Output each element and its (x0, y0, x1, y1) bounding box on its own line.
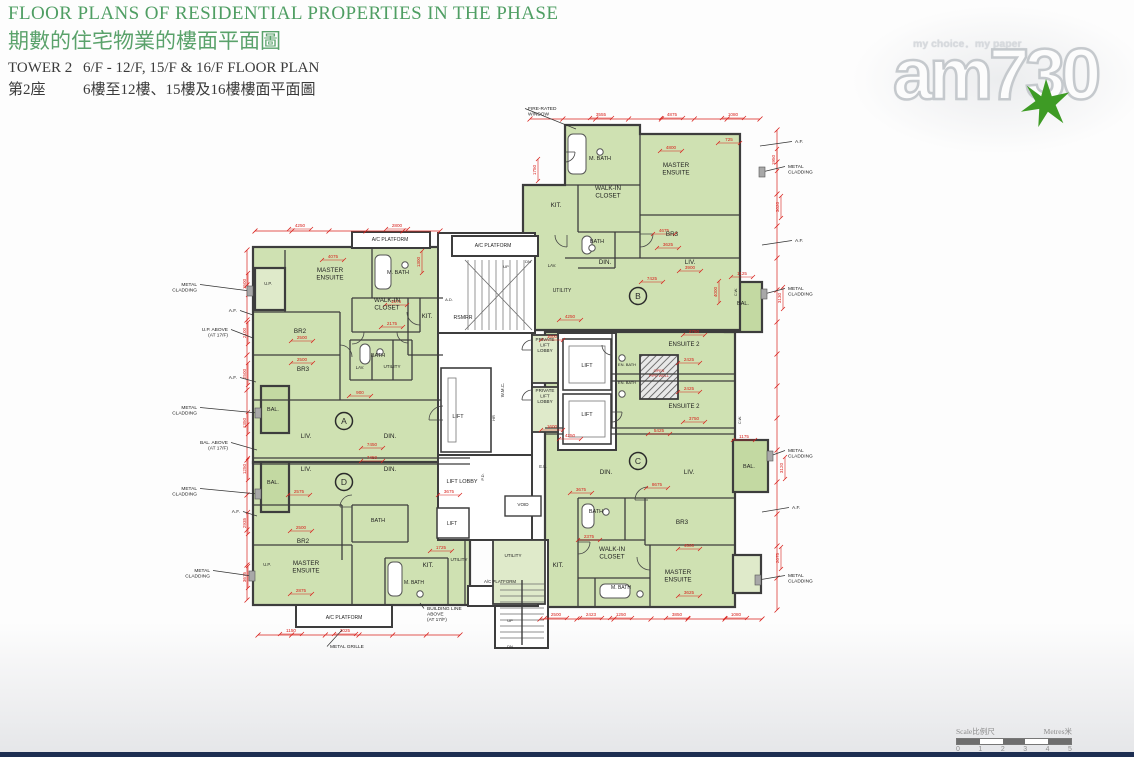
room-label: KIT. (551, 202, 562, 209)
room-label: M. BATH (589, 156, 611, 162)
dim-label: 1750 (532, 164, 537, 175)
dim-label: 1080 (731, 612, 742, 617)
room-label: W.M.C. (500, 383, 505, 397)
room-label: BR2 (297, 538, 310, 545)
dim-label: 2500 (242, 368, 247, 379)
room-label: ENSUITE 2 (668, 342, 700, 348)
lobby-area (493, 540, 545, 604)
floor-plan: 4250280035554875108017504800725467536253… (0, 0, 1134, 757)
dim-label: 1150 (286, 628, 296, 633)
room-label: MASTERENSUITE (292, 560, 319, 574)
dim-label: 2075 (775, 552, 780, 563)
dim-label: 3020 (775, 201, 780, 212)
annotation-leader (762, 167, 785, 173)
room-label: LAV. (548, 263, 556, 268)
annotation-label: BUILDING LINEABOVE(AT 17/F) (427, 606, 462, 623)
dim-label: 3675 (576, 487, 587, 492)
toilet (417, 591, 423, 597)
room-label: A/C PLATFORM (484, 579, 516, 584)
toilet (637, 591, 643, 597)
room-label: DIN. (599, 259, 612, 266)
room-label: BAL. (267, 407, 279, 413)
dim-label: 2375 (584, 534, 595, 539)
dim-label: 2750 (689, 329, 700, 334)
cladding-mark (249, 571, 255, 581)
room-label: A/C PLATFORM (326, 615, 363, 621)
dim-label: 2100 (242, 327, 247, 338)
cladding-mark (759, 167, 765, 177)
scale-segment (1003, 739, 1026, 744)
scale-bar-labels: Scale比例尺 Metres米 (956, 726, 1072, 737)
bathtub (582, 504, 594, 528)
annotation-label: A.F. (229, 308, 237, 314)
room-label: BATH (371, 518, 385, 524)
room-label: LIFT LOBBY (446, 479, 477, 485)
annotation-label: METALCLADDING (788, 164, 813, 176)
dim-label: 1500 (242, 278, 247, 289)
annotation-leader (760, 142, 792, 147)
dim-label: 4000 (713, 286, 718, 297)
unit-badge-letter: A (341, 416, 347, 426)
room-label: LIV. (301, 433, 312, 440)
scale-segment (957, 739, 980, 744)
dim-label: 900 (356, 390, 364, 395)
dim-label: 2425 (684, 357, 695, 362)
toilet (589, 245, 595, 251)
cladding-mark (767, 451, 773, 461)
scale-segment (980, 739, 1003, 744)
room-label: U.P. (264, 281, 272, 286)
room-label: M. BATH (387, 270, 409, 276)
dim-label: 1125 (737, 271, 747, 276)
cladding-mark (255, 489, 261, 499)
cladding-mark (255, 408, 261, 418)
room-label: WALK-INCLOSET (599, 546, 625, 560)
toilet (619, 391, 625, 397)
room-label: UTILITY (504, 553, 521, 558)
dim-label: 1950 (771, 154, 776, 165)
dim-label: 4075 (328, 254, 339, 259)
annotation-leader (240, 311, 253, 316)
cladding-mark (755, 575, 761, 585)
toilet (597, 149, 603, 155)
room-label: EN. BATH (618, 380, 636, 385)
annotation-label: A.F. (792, 505, 800, 511)
dim-label: 2800 (392, 223, 403, 228)
scale-segment (1048, 739, 1071, 744)
annotation-label: A.F. (232, 509, 240, 515)
dim-label: 4250 (565, 433, 576, 438)
room-label: MASTERENSUITE (316, 267, 343, 281)
dim-label: 3675 (444, 489, 455, 494)
dim-label: 2935 (242, 517, 247, 528)
cladding-mark (761, 289, 767, 299)
room-label: LIFT (581, 412, 593, 418)
room-label: BR2 (294, 328, 307, 335)
room-label: KIT. (553, 562, 564, 569)
bathtub (388, 562, 402, 596)
room-label: MASTERENSUITE (662, 162, 689, 176)
annotation-label: METALCLADDING (172, 282, 197, 294)
annotation-label: A.F. (795, 139, 803, 145)
bottom-strip (0, 752, 1134, 757)
dim-label: 4800 (666, 145, 677, 150)
dim-label: 3625 (663, 242, 674, 247)
dim-label: 2423 (586, 612, 597, 617)
room-label: LIFT (581, 363, 593, 369)
annotation-leader (762, 508, 789, 513)
lift-shaft (441, 368, 491, 452)
room-label: BR3 (666, 231, 679, 238)
room-label: C.W. (734, 288, 738, 296)
room-label: E.L. (539, 464, 546, 469)
room-label: RSMRR (453, 315, 472, 321)
room-label: UTILITY (553, 288, 572, 294)
dim-label: 2425 (684, 386, 695, 391)
dim-label: 725 (725, 137, 733, 142)
toilet (603, 509, 609, 515)
room-label: BAL. (267, 480, 279, 486)
annotation-label: A.F. (229, 375, 237, 381)
dim-label: 3120 (779, 462, 784, 473)
annotation-label: METALCLADDING (185, 568, 210, 580)
room-label: UP (503, 264, 509, 269)
metres-label: Metres米 (1044, 726, 1072, 737)
room-label: DIN. (384, 433, 397, 440)
dim-label: 3750 (689, 416, 700, 421)
dim-label: 3850 (672, 612, 683, 617)
room-label: BATH (590, 239, 604, 245)
dim-label: 1080 (728, 112, 739, 117)
room-label: KIT. (423, 562, 434, 569)
dim-label: 5425 (654, 428, 665, 433)
dim-label: 1725 (436, 545, 447, 550)
room-label: LIV. (685, 259, 696, 266)
room-label: ENSUITE 2 (668, 404, 700, 410)
dim-label: 2875 (296, 588, 307, 593)
annotation-label: METALCLADDING (788, 448, 813, 460)
dim-label: 2175 (387, 321, 398, 326)
room-label: VOID (517, 502, 529, 507)
unit-area (733, 555, 761, 593)
room-label: P.D. (480, 473, 485, 480)
dim-label: 1600 (547, 424, 558, 429)
room-label: LIFT (447, 521, 457, 527)
annotation-label: BAL. ABOVE(AT 17/F) (200, 440, 228, 452)
scale-label: Scale比例尺 (956, 726, 995, 737)
dim-label: 4250 (565, 314, 576, 319)
annotation-label: METALCLADDING (788, 286, 813, 298)
dim-label: 1175 (739, 434, 749, 439)
dim-label: 1250 (242, 463, 247, 474)
unit-area (255, 268, 285, 310)
dim-label: 1350 (242, 417, 247, 428)
room-label: A/C PLATFORM (475, 243, 512, 249)
dim-label: 3675 (242, 571, 247, 582)
room-label: M. BATH (611, 585, 631, 591)
toilet (402, 262, 408, 268)
dim-label: 2500 (297, 357, 308, 362)
room-label: LIV. (684, 469, 695, 476)
room-label: UTILITY (383, 364, 400, 369)
room-label: BAL. (743, 464, 755, 470)
room-label: A.D. (445, 297, 453, 302)
dim-label: 3130 (777, 292, 782, 303)
room-label: BR3 (297, 366, 310, 373)
room-label: LIFT (452, 414, 464, 420)
room-label: DIN. (384, 466, 397, 473)
annotation-label: METALCLADDING (172, 405, 197, 417)
dim-label: 2500 (551, 612, 562, 617)
room-label: DIN. (600, 469, 613, 476)
room-label: MASTERENSUITE (664, 569, 691, 583)
annotation-label: A.F. (795, 238, 803, 244)
scale-bar: Scale比例尺 Metres米 012345 (956, 726, 1072, 753)
room-label: LAV. (356, 365, 364, 370)
bathtub (568, 134, 586, 174)
unit-area (523, 125, 740, 330)
dim-label: 7450 (367, 442, 378, 447)
dim-label: 7425 (647, 276, 658, 281)
brochure-page: FLOOR PLANS OF RESIDENTIAL PROPERTIES IN… (0, 0, 1134, 757)
dim-label: 3625 (684, 590, 695, 595)
dim-label: 2575 (294, 489, 305, 494)
dim-label: 2500 (296, 525, 307, 530)
dim-label: 8675 (652, 482, 663, 487)
annotation-leader (200, 489, 258, 495)
room-label: BATH (589, 509, 603, 515)
annotation-label: METALCLADDING (788, 573, 813, 585)
unit-badge-letter: C (635, 456, 641, 466)
room-label: U.P. (263, 562, 271, 567)
room-label: DN (525, 259, 531, 264)
room-label: C.W. (738, 416, 742, 424)
room-label: BAL. (737, 301, 749, 307)
room-label: BATH (371, 353, 385, 359)
room-label: WALK-INCLOSET (595, 185, 621, 199)
room-label: DN (507, 644, 513, 649)
annotation-label: METAL GRILLE (330, 644, 364, 650)
unit-badge-letter: D (341, 477, 347, 487)
cladding-mark (247, 286, 253, 296)
dim-label: 4875 (667, 112, 678, 117)
room-label: EN. BATH (618, 362, 636, 367)
room-label: BR3 (676, 519, 689, 526)
room-label: LIV. (301, 466, 312, 473)
scale-segment (1025, 739, 1048, 744)
dim-label: 7450 (367, 455, 378, 460)
unit-badge-letter: B (635, 291, 641, 301)
bathtub (360, 344, 370, 364)
dim-label: 1250 (616, 612, 627, 617)
room-label: KIT. (422, 313, 433, 320)
room-label: M. BATH (404, 580, 424, 586)
room-label: A/C PLATFORM (372, 237, 409, 243)
dim-label: 3555 (596, 112, 607, 117)
dim-label: 4250 (295, 223, 306, 228)
annotation-label: METALCLADDING (172, 486, 197, 498)
dim-label: 1300 (416, 256, 421, 267)
dim-label: 4500 (684, 543, 695, 548)
room-label: HR (491, 415, 496, 421)
room-label: UP (507, 618, 513, 623)
room-label: WALK-INCLOSET (374, 297, 400, 311)
scale-bar-ruler (956, 738, 1072, 745)
toilet (619, 355, 625, 361)
dim-label: 2500 (297, 335, 308, 340)
room-label: UTILITY (450, 557, 467, 562)
annotation-label: U.P. ABOVE(AT 17/F) (202, 327, 229, 339)
